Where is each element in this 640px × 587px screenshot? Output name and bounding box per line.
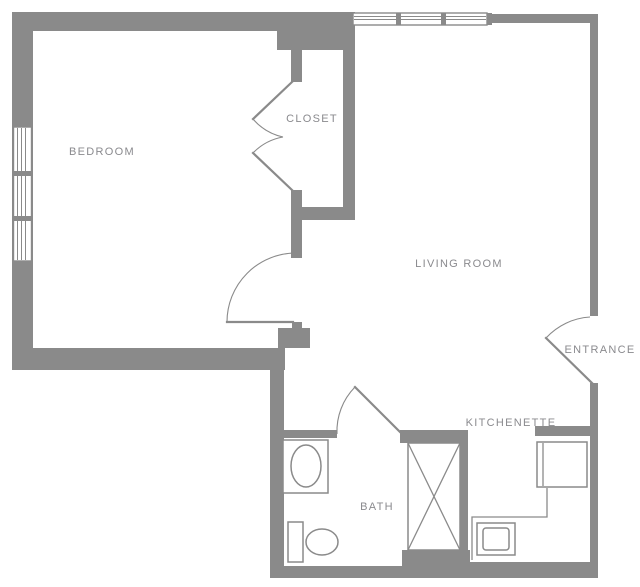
closet-bifold-door: [253, 82, 292, 190]
kitchenette-label: KITCHENETTE: [466, 417, 557, 429]
bedroom-window: [13, 127, 32, 261]
door-swing-arc: [546, 317, 590, 338]
partition-bedroom-living: [291, 190, 302, 258]
bath-wall-left: [270, 370, 284, 578]
bedroom-door: [227, 253, 296, 322]
exterior-wall-right-lower: [590, 383, 598, 578]
utility-closet: [408, 443, 460, 550]
sink-basin: [483, 528, 509, 550]
utility-closet-wall-bottom: [402, 550, 470, 578]
kitchenette-wall-bottom: [468, 562, 598, 578]
utility-closet-wall-right: [460, 441, 468, 553]
exterior-wall-top-bedroom: [12, 12, 277, 31]
refrigerator: [537, 442, 587, 487]
bath-door: [337, 387, 400, 434]
bifold-swing-arc: [253, 137, 283, 153]
bedroom-door-jamb-block: [278, 328, 310, 348]
refrigerator-body: [537, 442, 587, 487]
bedroom-wall-bottom: [12, 348, 285, 370]
floor-plan: BEDROOM CLOSET LIVING ROOM ENTRANCE KITC…: [0, 0, 640, 587]
bifold-panel: [253, 153, 292, 190]
closet-wall-right: [343, 50, 355, 207]
exterior-wall-top-right: [486, 14, 598, 23]
floor-plan-svg: BEDROOM CLOSET LIVING ROOM ENTRANCE KITC…: [0, 0, 640, 587]
window-pane: [14, 127, 32, 261]
entrance-label: ENTRANCE: [565, 344, 636, 356]
kitchen-sink: [477, 523, 515, 555]
bath-sink: [283, 440, 328, 493]
window-mullion: [13, 216, 32, 221]
living-room-label: LIVING ROOM: [415, 258, 503, 270]
closet-wall-top-block: [277, 12, 355, 50]
toilet: [288, 522, 338, 562]
door-leaf: [355, 387, 400, 432]
closet-door-jamb-top: [291, 50, 302, 82]
bifold-swing-arc: [253, 119, 283, 137]
bath-wall-bottom: [270, 566, 407, 578]
closet-wall-bottom: [297, 207, 355, 220]
closet-label: CLOSET: [286, 113, 338, 125]
sink-basin: [291, 445, 321, 487]
door-swing-arc: [227, 253, 296, 322]
bath-wall-top: [282, 430, 337, 438]
toilet-bowl: [306, 529, 338, 555]
living-room-window: [353, 13, 487, 25]
toilet-tank: [288, 522, 303, 562]
exterior-wall-right-upper: [590, 14, 598, 316]
window-mullion: [441, 13, 446, 25]
window-mullion: [396, 13, 401, 25]
window-mullion: [13, 171, 32, 176]
door-swing-arc: [337, 387, 355, 434]
bedroom-label: BEDROOM: [69, 146, 135, 158]
bath-label: BATH: [360, 501, 394, 513]
utility-closet-wall-top: [400, 430, 468, 443]
